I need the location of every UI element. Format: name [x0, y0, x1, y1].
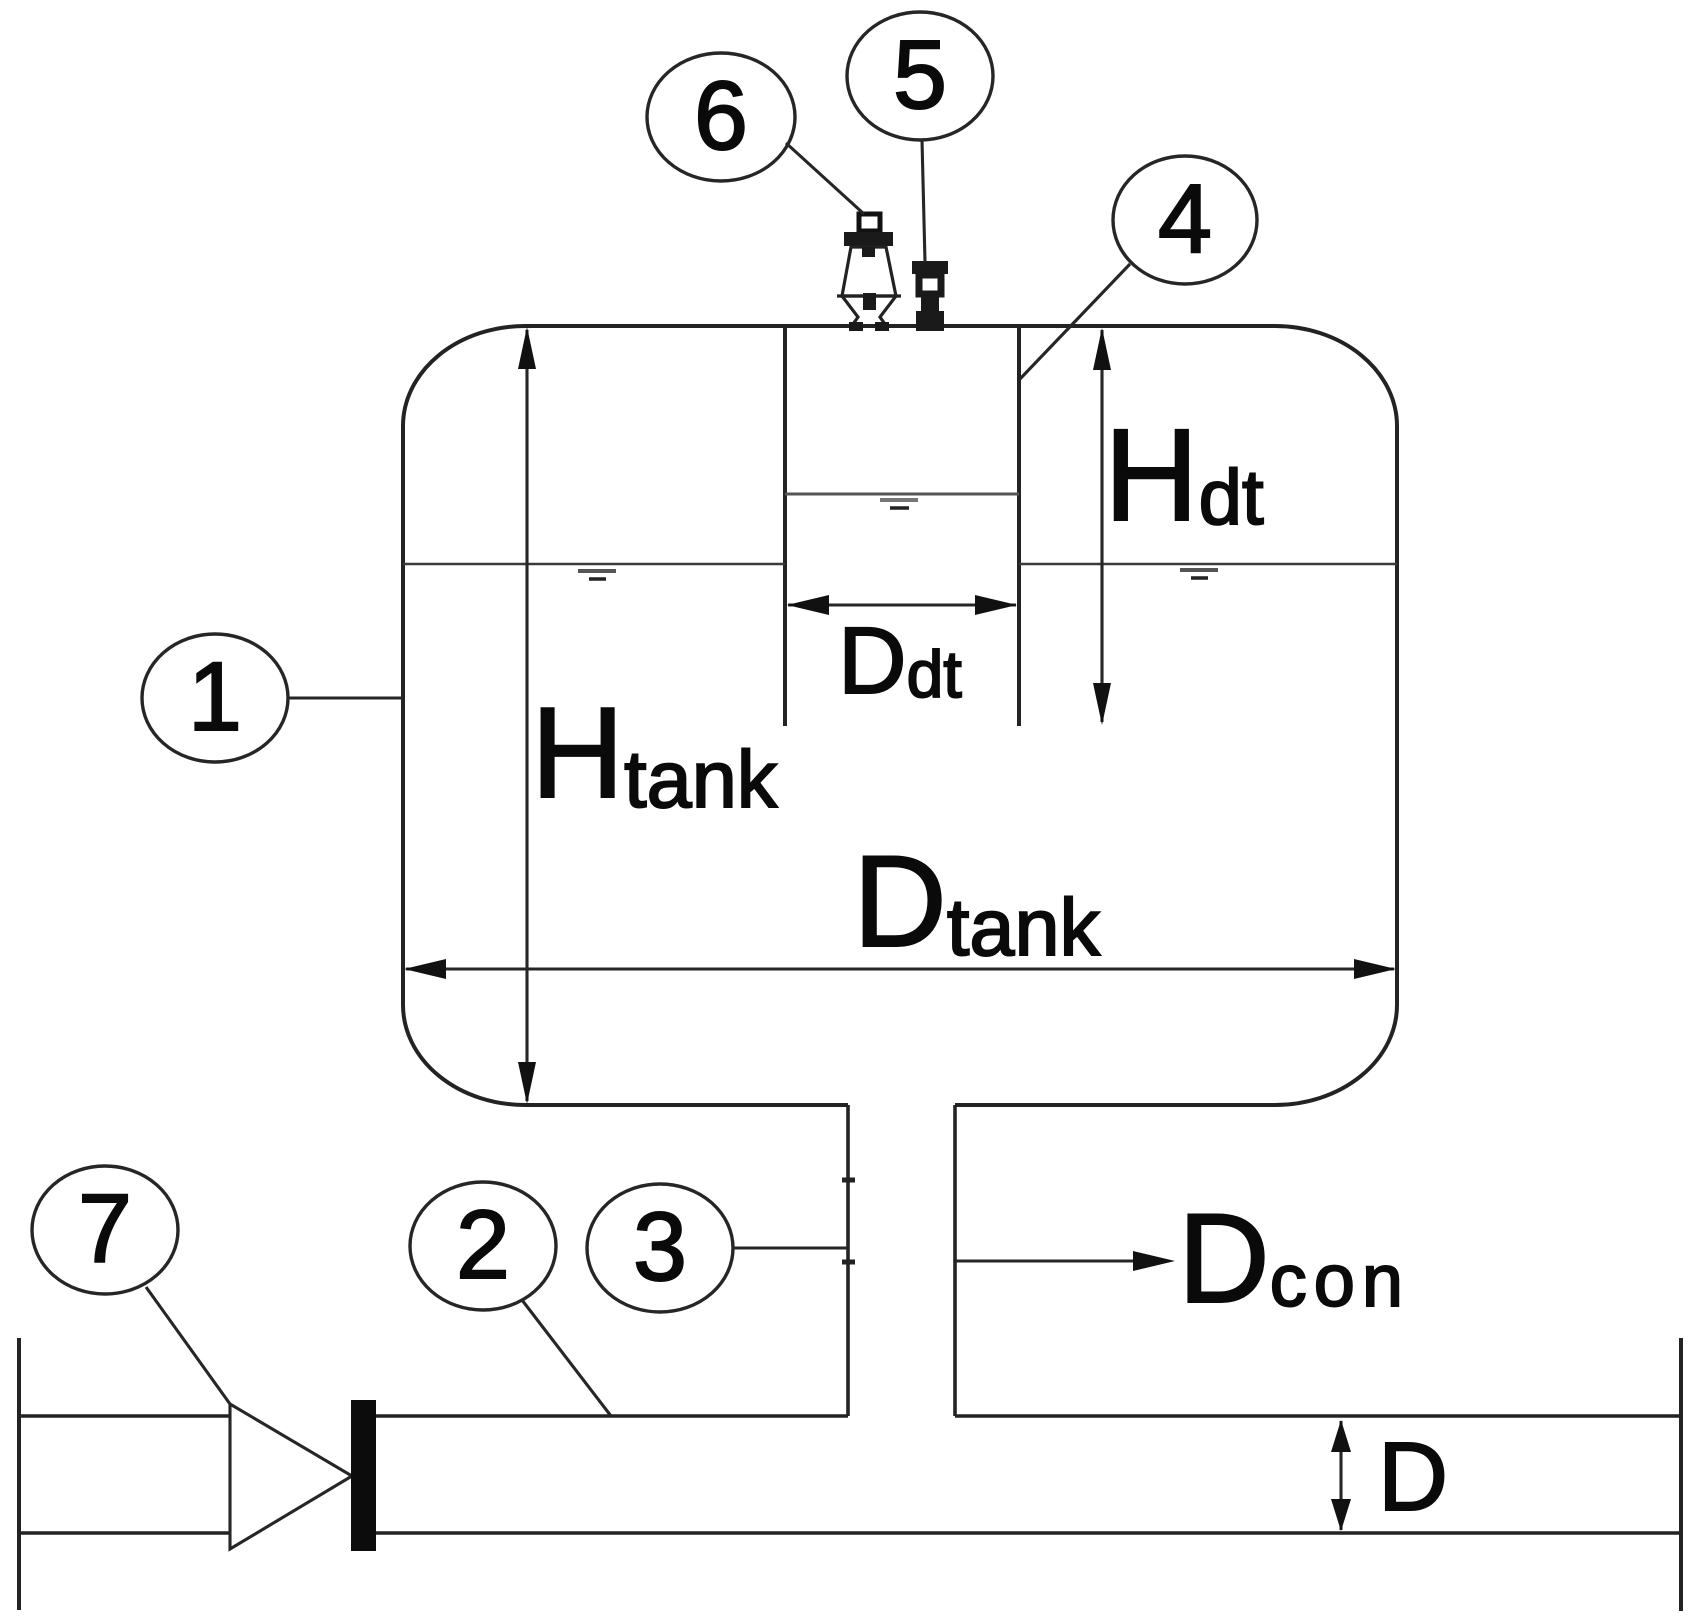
svg-text:5: 5: [893, 20, 947, 129]
svg-text:1: 1: [188, 642, 242, 751]
svg-text:7: 7: [78, 1174, 132, 1283]
svg-text:D: D: [1378, 1422, 1448, 1531]
svg-text:6: 6: [694, 61, 748, 170]
svg-text:4: 4: [1158, 164, 1212, 273]
svg-text:2: 2: [456, 1190, 510, 1299]
svg-text:3: 3: [633, 1192, 687, 1301]
